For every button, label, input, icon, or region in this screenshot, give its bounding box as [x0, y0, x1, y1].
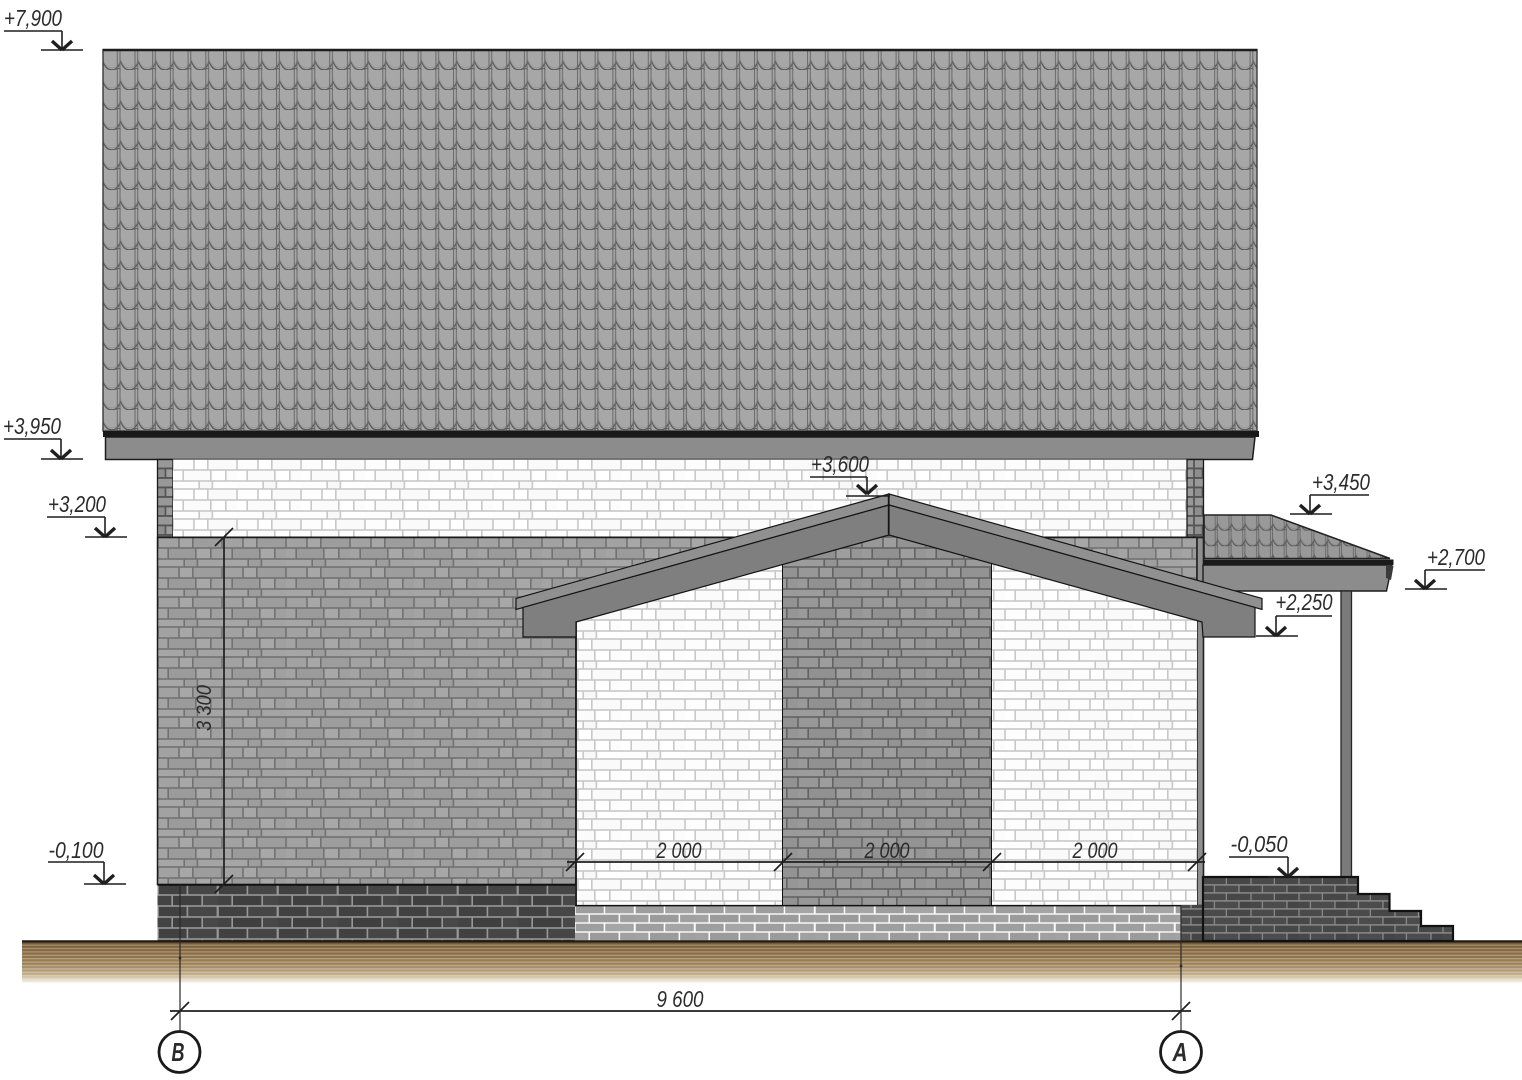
svg-text:+3,600: +3,600	[811, 451, 869, 477]
svg-text:-0,100: -0,100	[49, 837, 104, 863]
svg-text:+7,900: +7,900	[4, 5, 62, 31]
svg-text:2 000: 2 000	[864, 838, 910, 863]
svg-text:+3,200: +3,200	[48, 491, 106, 517]
svg-text:A: A	[1172, 1037, 1188, 1067]
svg-text:+2,250: +2,250	[1276, 589, 1333, 615]
svg-text:2 000: 2 000	[656, 838, 702, 863]
svg-text:+2,700: +2,700	[1427, 544, 1485, 570]
svg-text:9 600: 9 600	[657, 986, 704, 1012]
svg-text:+3,950: +3,950	[3, 413, 61, 439]
svg-text:B: B	[172, 1037, 185, 1067]
svg-text:3 300: 3 300	[193, 685, 216, 731]
svg-text:-0,050: -0,050	[1231, 831, 1288, 857]
svg-text:+3,450: +3,450	[1312, 469, 1370, 495]
svg-text:2 000: 2 000	[1072, 838, 1118, 863]
